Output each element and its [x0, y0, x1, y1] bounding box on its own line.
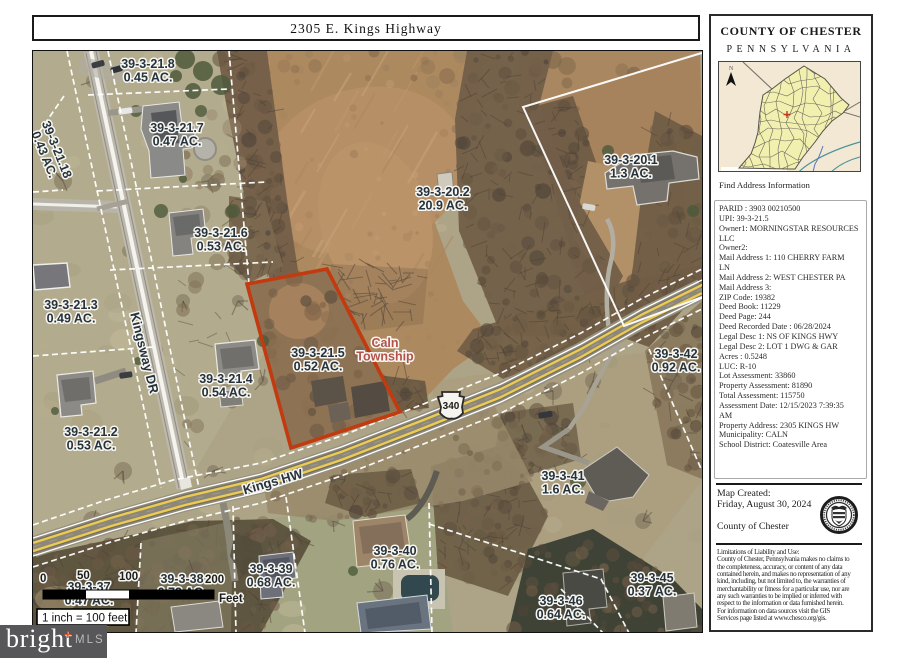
svg-text:39-3-21.2: 39-3-21.2 [64, 425, 118, 439]
svg-text:39-3-21.5: 39-3-21.5 [291, 346, 345, 360]
svg-text:39-3-21.4: 39-3-21.4 [199, 372, 253, 386]
svg-text:Township: Township [356, 350, 414, 364]
svg-text:39-3-41: 39-3-41 [541, 469, 584, 483]
svg-text:1.6 AC.: 1.6 AC. [542, 483, 584, 497]
svg-text:39-3-21.8: 39-3-21.8 [121, 57, 175, 71]
svg-text:0.49 AC.: 0.49 AC. [47, 312, 96, 326]
svg-text:39-3-46: 39-3-46 [539, 594, 582, 608]
svg-text:Feet: Feet [219, 593, 243, 605]
svg-text:0.53 AC.: 0.53 AC. [67, 439, 116, 453]
svg-text:39-3-42: 39-3-42 [654, 347, 697, 361]
svg-text:39-3-20.1: 39-3-20.1 [604, 153, 658, 167]
svg-text:0.52 AC.: 0.52 AC. [294, 360, 343, 374]
svg-text:0.68 AC.: 0.68 AC. [247, 576, 296, 590]
svg-text:0.47 AC.: 0.47 AC. [153, 135, 202, 149]
svg-text:39-3-45: 39-3-45 [630, 571, 673, 585]
svg-text:39-3-40: 39-3-40 [373, 544, 416, 558]
svg-text:39-3-20.2: 39-3-20.2 [416, 185, 470, 199]
svg-text:340: 340 [443, 401, 460, 412]
svg-text:0.37 AC.: 0.37 AC. [628, 585, 677, 599]
svg-text:Caln: Caln [371, 336, 398, 350]
svg-text:0.45 AC.: 0.45 AC. [124, 71, 173, 85]
svg-text:39-3-38: 39-3-38 [160, 572, 203, 586]
svg-text:39-3-21.7: 39-3-21.7 [150, 121, 204, 135]
svg-text:N: N [729, 66, 734, 72]
svg-text:200: 200 [205, 574, 224, 586]
svg-text:20.9 AC.: 20.9 AC. [419, 199, 468, 213]
svg-text:0.64 AC.: 0.64 AC. [537, 608, 586, 622]
svg-text:1.3 AC.: 1.3 AC. [610, 167, 652, 181]
svg-text:0.53 AC.: 0.53 AC. [197, 240, 246, 254]
svg-text:39-3-21.3: 39-3-21.3 [44, 298, 98, 312]
svg-text:100: 100 [119, 571, 138, 583]
svg-text:39-3-21.6: 39-3-21.6 [194, 226, 248, 240]
svg-text:50: 50 [77, 570, 90, 582]
svg-text:0.76 AC.: 0.76 AC. [371, 558, 420, 572]
svg-text:0.54 AC.: 0.54 AC. [202, 386, 251, 400]
svg-text:1 inch = 100 feet: 1 inch = 100 feet [42, 613, 128, 625]
svg-text:39-3-39: 39-3-39 [249, 562, 292, 576]
svg-text:0: 0 [40, 573, 46, 585]
svg-text:0.92 AC.: 0.92 AC. [652, 361, 701, 375]
